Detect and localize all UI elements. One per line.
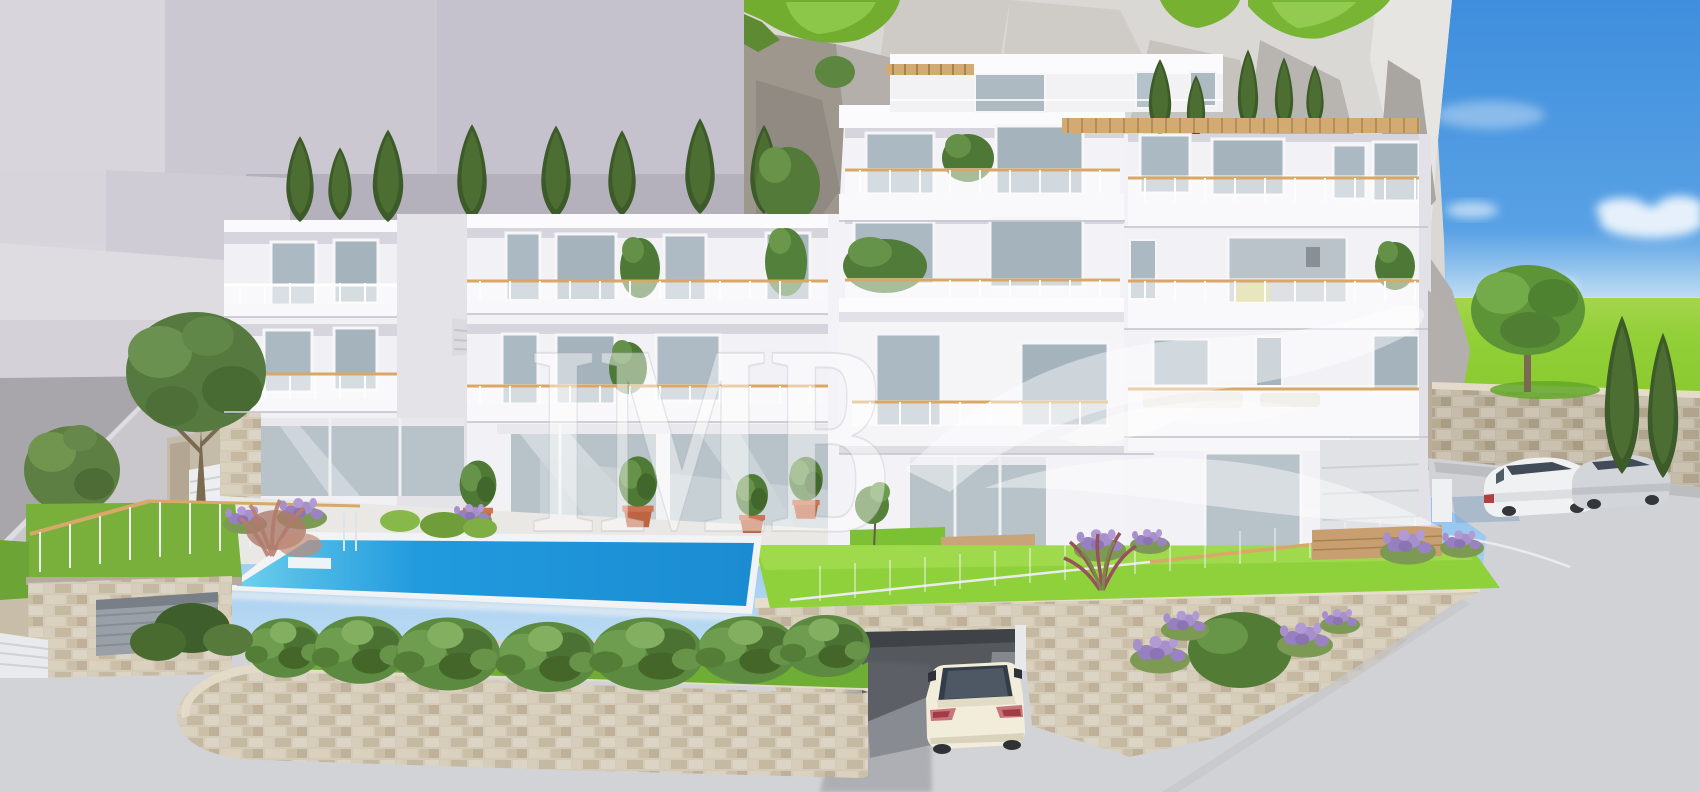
svg-text:IMB: IMB — [528, 289, 890, 590]
